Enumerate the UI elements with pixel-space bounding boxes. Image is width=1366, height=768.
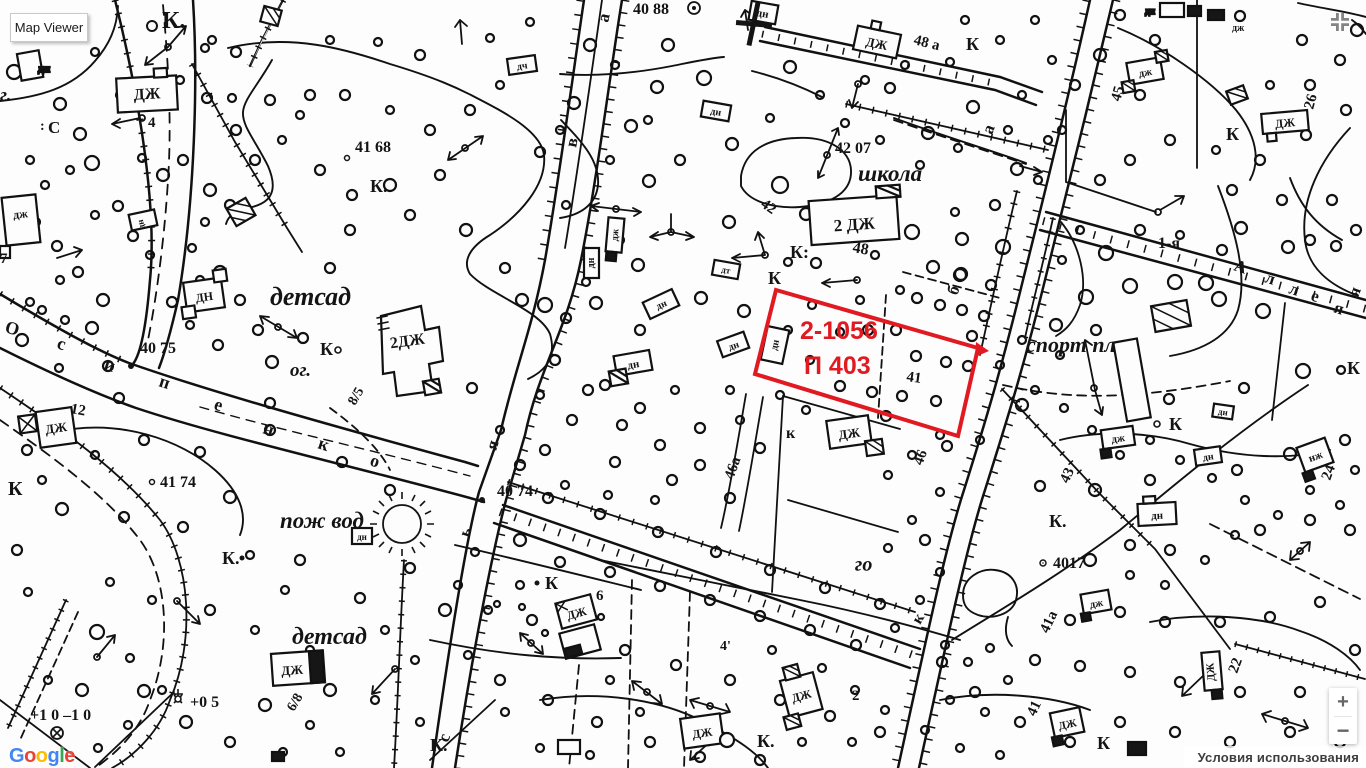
svg-text:К: К	[8, 478, 23, 500]
svg-text:г.: г.	[0, 85, 12, 106]
svg-text:4': 4'	[720, 639, 731, 654]
svg-text:ДЖ: ДЖ	[1204, 662, 1218, 682]
svg-text:дн: дн	[1151, 510, 1164, 523]
svg-text:дн: дн	[709, 106, 722, 119]
svg-text:40 88: 40 88	[633, 1, 669, 18]
svg-text:К.: К.	[162, 8, 185, 34]
svg-text:2 ДЖ: 2 ДЖ	[833, 214, 876, 236]
svg-text:41 68: 41 68	[355, 139, 391, 156]
svg-text:дн: дн	[586, 257, 597, 268]
svg-text:детсад: детсад	[292, 624, 367, 650]
svg-text:дж: дж	[1111, 432, 1126, 446]
svg-text:ДН: ДН	[195, 289, 215, 305]
svg-text:ДЖ: ДЖ	[691, 725, 713, 742]
svg-text:2-1056: 2-1056	[800, 317, 878, 345]
svg-text:7: 7	[0, 251, 8, 267]
svg-text:спорт пл: спорт пл	[1026, 332, 1116, 357]
svg-text:дж: дж	[12, 206, 28, 221]
svg-text:дн: дн	[1145, 6, 1155, 16]
svg-text:дн: дн	[1202, 451, 1214, 463]
svg-text:дн: дн	[135, 219, 147, 231]
svg-text:1-я: 1-я	[1158, 235, 1180, 252]
svg-text:ог: ог	[855, 556, 872, 578]
svg-text:6: 6	[596, 588, 604, 604]
svg-text:дж: дж	[1232, 23, 1245, 34]
svg-text:+1 0 –1 0: +1 0 –1 0	[30, 707, 91, 724]
svg-text:К.: К.	[757, 731, 775, 751]
svg-text:48: 48	[851, 239, 870, 259]
svg-text:П 403: П 403	[804, 352, 871, 380]
svg-text:пож вод: пож вод	[280, 508, 364, 533]
svg-text:К: К	[1169, 414, 1182, 434]
svg-text:дч: дч	[516, 60, 528, 72]
svg-text:дж: дж	[1138, 66, 1153, 80]
svg-text:К:: К:	[790, 242, 809, 262]
svg-text:К: К	[1347, 358, 1360, 378]
svg-text:дн: дн	[38, 63, 51, 75]
svg-text:12: 12	[69, 401, 87, 419]
svg-text:41 74: 41 74	[160, 474, 196, 491]
svg-text:К.: К.	[1049, 511, 1067, 531]
svg-text:К: К	[545, 573, 558, 593]
svg-text:ог.: ог.	[290, 360, 311, 381]
svg-text:40 75: 40 75	[140, 340, 176, 357]
svg-text:40 74: 40 74	[497, 483, 533, 500]
svg-text:ДЖ: ДЖ	[281, 662, 304, 678]
svg-text:ДЖ: ДЖ	[133, 85, 161, 103]
svg-text:2: 2	[852, 688, 860, 704]
svg-text:к: к	[786, 425, 796, 442]
svg-text:К: К	[320, 339, 333, 359]
svg-text:41: 41	[905, 369, 922, 387]
svg-text:ДЖ: ДЖ	[1274, 115, 1295, 131]
svg-text:4017: 4017	[1053, 555, 1085, 572]
svg-text:дж: дж	[609, 228, 621, 242]
svg-text:К: К	[966, 34, 979, 54]
svg-text:дн: дн	[357, 532, 367, 542]
svg-text:школа: школа	[858, 161, 922, 186]
svg-text:дж: дж	[1089, 597, 1104, 611]
svg-text:К: К	[1226, 124, 1239, 144]
svg-text:С: С	[48, 118, 60, 137]
svg-text:4: 4	[148, 115, 156, 131]
svg-text:дн: дн	[1217, 406, 1228, 417]
svg-text:детсад: детсад	[270, 282, 351, 311]
svg-text:42 07: 42 07	[835, 140, 871, 157]
svg-text::: :	[40, 119, 45, 134]
svg-text:+0 5: +0 5	[190, 694, 219, 711]
svg-text:К: К	[1097, 733, 1110, 753]
svg-text:К.: К.	[222, 548, 240, 568]
svg-text:К: К	[768, 268, 781, 288]
svg-text:ДЖ: ДЖ	[44, 419, 68, 437]
svg-text:ДЖ: ДЖ	[837, 425, 861, 443]
svg-text:К.: К.	[370, 176, 388, 196]
